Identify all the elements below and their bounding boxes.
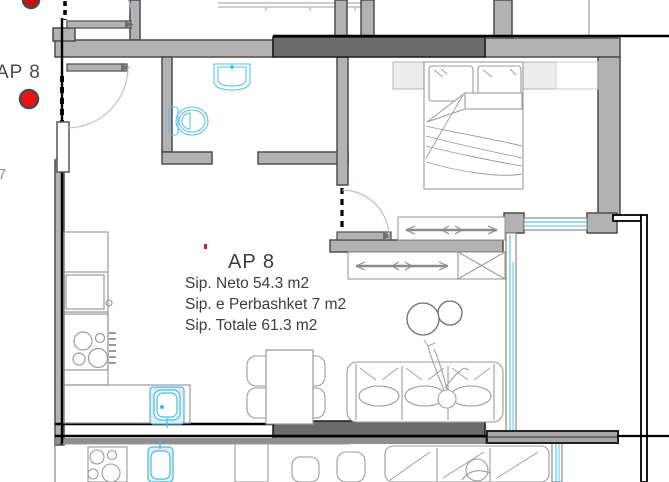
wardrobe-living [348,252,458,279]
stove-grill-icon [109,333,116,363]
shelf-x-unit [458,252,505,279]
window-neighbor-bottom [552,443,562,482]
area-neto-label: Sip. Neto 54.3 m2 [185,275,309,293]
dining-chair [292,457,319,482]
stove-icon [64,314,108,370]
door-bedroom [337,190,392,240]
nightstand-right [523,62,598,89]
door-swing-arc [67,67,128,128]
neighbor-sink-icon [148,440,173,482]
neighbor-kitchen [55,443,365,482]
door-hall [67,64,130,128]
bed [424,62,523,189]
window-bedroom [524,218,587,230]
neighbor-sofa [385,446,549,482]
apartment-label-left: AP 8 [0,62,41,84]
floor-plan-canvas [0,0,669,482]
door-swing-arc [342,190,389,237]
coffee-tables [407,301,462,335]
dining-chair [337,452,365,482]
area-total-label: Sip. Totale 61.3 m2 [185,317,317,335]
wall-bottom-strip [55,438,485,444]
apartment-marker-dot-top[interactable] [23,0,39,8]
window-living-vertical [506,233,516,431]
apartment-title: AP 8 [228,251,275,274]
nightstand-left [393,62,424,89]
side-note-label: 7 [0,166,6,183]
dining-table [266,350,313,424]
floor-plan: AP 8 7 AP 8 Sip. Neto 54.3 m2 Sip. e Per… [0,0,669,482]
kitchen-sink-icon [150,387,184,428]
balcony-parapet [487,431,618,443]
apartment-marker-dot[interactable] [20,90,38,108]
red-tick [204,244,207,249]
area-shared-label: Sip. e Perbashket 7 m2 [185,296,346,314]
neighbor-wardrobe-rail [218,0,589,36]
stove-icon [88,450,120,482]
door-entry-top [67,0,134,28]
door-frame [57,122,69,172]
toilet-icon [169,107,208,135]
wardrobe-bedroom [398,217,505,240]
sofa [347,362,503,422]
bathroom-sink-icon [214,64,250,90]
